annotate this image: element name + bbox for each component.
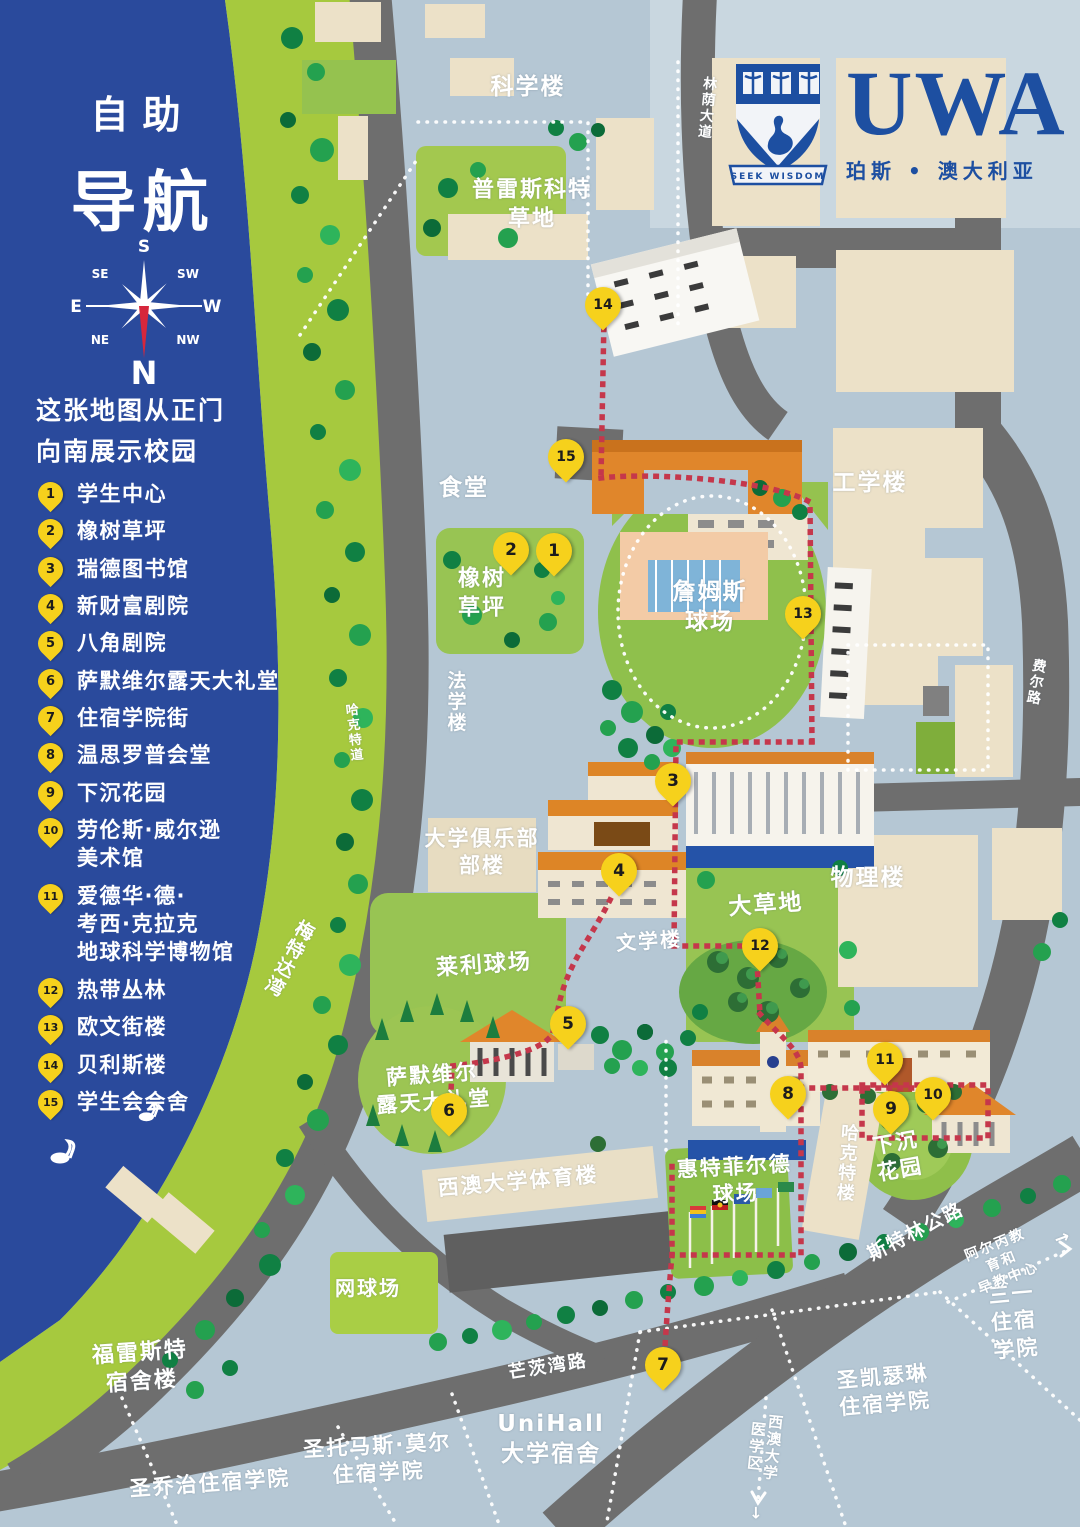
map-pin-15: 15 [541,432,592,483]
legend-pin-icon: 11 [33,879,68,914]
legend-pin-icon: 12 [33,973,68,1008]
reid-library-building [686,752,874,868]
legend-pin-icon: 5 [33,626,68,661]
legend-item: 6萨默维尔露天大礼堂 [38,667,318,695]
legend-label: 住宿学院街 [77,704,190,732]
legend-label: 橡树草坪 [77,517,167,545]
legend-item: 9下沉花园 [38,779,318,807]
uwa-crest-icon: SEEK WISDOM [728,60,828,188]
physics-road [855,792,1080,798]
legend-item: 10劳伦斯·威尔逊 美术馆 [38,816,318,873]
map-pin-10: 10 [908,1070,959,1121]
map-pin-3: 3 [648,756,699,807]
map-pin-14: 14 [578,280,629,331]
map-label: 食堂 [439,474,489,504]
map-label: 橡树 草坪 [458,565,506,622]
map-pin-5: 5 [543,999,594,1050]
legend-label: 爱德华·德· 考西·克拉克 地球科学博物馆 [77,882,235,967]
compass-needle [139,306,149,358]
legend-pin-icon: 6 [33,664,68,699]
map-pin-2: 2 [486,525,537,576]
map-label: 圣托马斯·莫尔 住宿学院 [303,1429,454,1491]
legend-label: 温思罗普会堂 [77,741,212,769]
map-label: 大草地 [728,888,805,923]
map-label: 法学楼 [445,671,466,734]
legend-pin-icon: 10 [33,813,68,848]
legend-item: 14贝利斯楼 [38,1051,318,1079]
compass-nw: NW [176,333,199,347]
map-label: 哈克特楼 [833,1122,858,1203]
map-label: ↓ [749,1504,764,1525]
map-label: 大学俱乐部 部楼 [425,826,540,881]
map-label: 圣凯瑟琳 住宿学院 [836,1360,932,1422]
legend-label: 贝利斯楼 [77,1051,167,1079]
map-label: 普雷斯科特 草地 [472,176,592,233]
map-label: 下沉 花园 [871,1126,926,1188]
legend-label: 劳伦斯·威尔逊 美术馆 [77,816,221,873]
legend-item: 1学生中心 [38,480,318,508]
map-pin-7: 7 [638,1340,689,1391]
legend-label: 新财富剧院 [77,592,190,620]
legend-pin-icon: 2 [33,514,68,549]
legend-label: 萨默维尔露天大礼堂 [77,667,280,695]
map-label: 福雷斯特 宿舍楼 [91,1336,191,1400]
map-label: 物理楼 [831,864,906,894]
legend-label: 八角剧院 [77,629,167,657]
map-label: 詹姆斯 球场 [673,578,748,638]
legend-label: 下沉花园 [77,779,167,807]
orientation-note: 这张地图从正门 向南展示校园 [36,390,225,473]
map-label: 网球场 [335,1275,401,1301]
compass-s: S [138,237,150,257]
owen-building [820,567,872,719]
legend-pin-icon: 14 [33,1047,68,1082]
legend-item: 2橡树草坪 [38,517,318,545]
legend-label: 欧文街楼 [77,1013,167,1041]
map-pin-8: 8 [763,1069,814,1120]
legend-item: 8温思罗普会堂 [38,741,318,769]
map-label: 惠特菲尔德 球场 [676,1151,794,1212]
motto-text: SEEK WISDOM [731,172,826,182]
legend-pin-icon: 9 [33,776,68,811]
legend-item: 3瑞德图书馆 [38,555,318,583]
legend: 1学生中心2橡树草坪3瑞德图书馆4新财富剧院5八角剧院6萨默维尔露天大礼堂7住宿… [38,480,318,1116]
map-pin-1: 1 [529,526,580,577]
compass-w: W [203,297,222,317]
uwa-wordmark: UWA [846,60,1067,147]
map-pin-12: 12 [735,921,786,972]
legend-item: 4新财富剧院 [38,592,318,620]
legend-label: 学生中心 [77,480,167,508]
legend-label: 热带丛林 [77,976,167,1004]
logo-subtitle: 珀斯 • 澳大利亚 [846,155,1067,184]
compass-se: SE [92,267,109,281]
map-label: 西澳大学医学区 [743,1405,784,1488]
map-label: 工学楼 [833,469,908,499]
legend-pin-icon: 3 [33,552,68,587]
compass-sw: SW [177,267,199,281]
legend-item: 15学生会会舍 [38,1088,318,1116]
map-label: UniHall 大学宿舍 [497,1410,604,1470]
legend-label: 学生会会舍 [77,1088,190,1116]
legend-pin-icon: 15 [33,1085,68,1120]
legend-pin-icon: 8 [33,738,68,773]
octagon-theatre [558,1044,594,1070]
legend-pin-icon: 13 [33,1010,68,1045]
legend-pin-icon: 1 [33,477,68,512]
legend-item: 5八角剧院 [38,629,318,657]
map-pin-9: 9 [866,1084,917,1135]
uwa-logo: SEEK WISDOM UWA 珀斯 • 澳大利亚 [728,60,1067,188]
legend-pin-icon: 7 [33,701,68,736]
map-label: 科学楼 [491,73,566,103]
map-label: 文学楼 [615,926,683,957]
legend-pin-icon: 4 [33,589,68,624]
compass-n: N [131,354,158,386]
compass-ne: NE [91,333,109,347]
map-pin-6: 6 [424,1086,475,1137]
map-pin-11: 11 [860,1035,911,1086]
compass-rose: S N E W SE SW NE NW [64,226,224,386]
poster-title: 自助 导航 [30,84,255,245]
legend-item: 13欧文街楼 [38,1013,318,1041]
map-pin-4: 4 [594,846,645,897]
compass-e: E [70,297,82,317]
campus-map-poster: 自助 导航 S N E W SE SW NE NW 这张地图从正门 向南展示校园… [0,0,1080,1527]
legend-item: 7住宿学院街 [38,704,318,732]
legend-label: 瑞德图书馆 [77,555,190,583]
title-line-1: 自助 [30,84,255,139]
map-pin-13: 13 [778,589,829,640]
legend-item: 11爱德华·德· 考西·克拉克 地球科学博物馆 [38,882,318,967]
